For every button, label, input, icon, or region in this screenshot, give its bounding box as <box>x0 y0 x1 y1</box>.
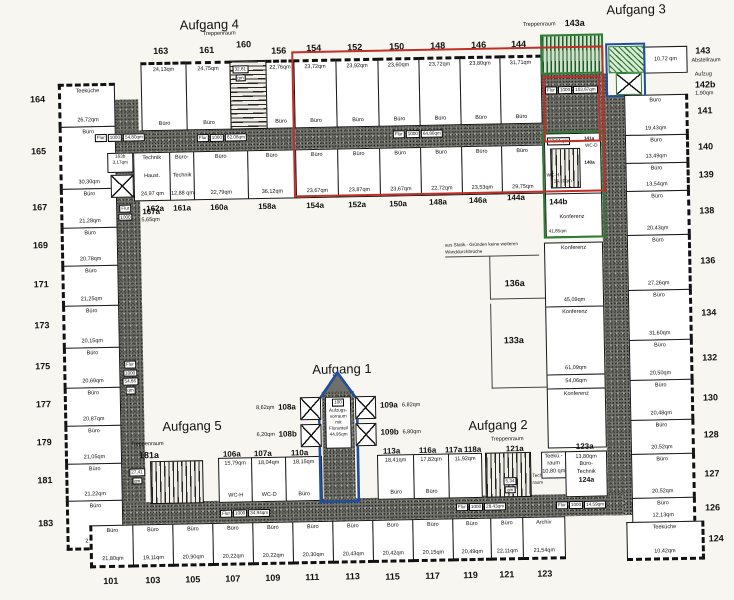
room-number-146: 146 <box>471 40 486 50</box>
room-number-132: 132 <box>702 352 717 362</box>
room-116a: 17,82qmBüro <box>413 453 450 499</box>
room-124: Teeküche10,42qm <box>626 521 705 561</box>
room-type-wcd: WC-D <box>585 143 598 149</box>
room-type-143: Abstellraum <box>691 57 720 64</box>
bracket-136a <box>489 256 491 300</box>
room-132: Büro20,50qm <box>629 339 694 381</box>
room-area-142b: 1,90qm <box>695 90 713 96</box>
room-area-144b: 41,85qm <box>549 228 567 234</box>
room-106a: 15,79qmWC-H <box>218 457 253 503</box>
room-111: Büro20,30qm <box>292 521 334 565</box>
bracket-136a-tick <box>490 298 545 300</box>
room-number-156: 156 <box>271 46 286 56</box>
room-148a: Büro22,72qm <box>420 146 463 196</box>
room-number-141: 141 <box>697 105 712 115</box>
room-number-134: 134 <box>701 307 716 317</box>
corridor-label-top-right: Flur100064,80qm <box>393 130 443 139</box>
room-154: 23,72qmBüro <box>293 59 337 129</box>
room-136a: Konferenz45,09qm <box>544 241 604 307</box>
room-number-123: 123 <box>537 568 552 578</box>
room-number-117a: 117a <box>445 445 463 454</box>
room-number-101: 101 <box>103 576 118 586</box>
stairwell-181a-area: 27,41 qm <box>129 468 145 485</box>
elevator-icon <box>355 396 376 419</box>
room-number-136a: 136a <box>505 278 525 288</box>
room-113a: 18,41qmBüro <box>377 454 415 500</box>
room-number-169: 169 <box>33 240 48 250</box>
room-number-109: 109 <box>265 573 280 583</box>
room-173: Büro20,15qm <box>62 305 120 349</box>
statik-note-underline <box>445 255 539 258</box>
room-number-175: 175 <box>35 361 50 371</box>
corridor-label-167a: Flur 1000 <box>118 204 133 221</box>
room-number-123a: 123a <box>576 442 594 451</box>
elevator-icon <box>616 73 642 95</box>
room-number-126: 126 <box>705 502 720 512</box>
room-115: Büro20,42qm <box>372 519 414 563</box>
room-134: Büro31,60qm <box>628 289 693 341</box>
room-number-160a: 160a <box>210 203 228 212</box>
room-181: Büro21,22qm <box>65 463 123 502</box>
room-163: 24,13qmBüro <box>140 61 187 131</box>
corridor-label-bottom-left: Flur100034,94qm <box>220 509 270 518</box>
treppenraum-160-label: Treppenraum <box>203 30 236 37</box>
room-141: Büro19,43qm <box>624 94 689 136</box>
room-103: Büro19,11qm <box>132 524 174 568</box>
room-buero-technik: Büro-Technik12,88 qm <box>169 151 195 200</box>
bracket-133a-tick <box>492 387 547 389</box>
room-number-161a: 161a <box>173 203 191 212</box>
room-number-108a: 108a <box>278 402 296 411</box>
room-number-181a: 181a <box>139 450 159 460</box>
stairwell-160-area: 32,81 qm <box>232 65 248 82</box>
building-plan: Aufgang 4 Aufgang 3 Aufgang 1 Aufgang 5 … <box>0 0 734 600</box>
room-number-141a: 141a <box>584 136 594 142</box>
heading-aufgang5: Aufgang 5 <box>162 418 222 434</box>
room-teekueche-122a: Teekü.-raum10,80 qm <box>541 451 567 478</box>
stairwell-143a-aufgang3 <box>540 33 604 74</box>
room-number-105: 105 <box>185 574 200 584</box>
treppenraum-143a-label: Treppenraum <box>523 21 556 28</box>
elevator-vestibule-aufgang3 <box>608 46 645 74</box>
room-area-wch: 14,10qm <box>554 178 572 184</box>
elevator-icon <box>300 424 321 447</box>
room-number-181: 181 <box>37 475 52 485</box>
room-techn-raum-2: raum <box>532 480 543 486</box>
elevator-icon <box>111 174 134 197</box>
room-136: Büro27,26qm <box>627 234 692 291</box>
elevator-icon <box>355 423 376 446</box>
room-number-150: 150 <box>389 41 404 51</box>
room-143: 10,72 qm <box>643 46 688 74</box>
room-type-144b: Konferenz <box>559 214 584 220</box>
room-number-171: 171 <box>34 279 49 289</box>
room-152a: Büro23,87qm <box>337 148 381 198</box>
wc-area-chip: 13,64 qm <box>547 137 570 145</box>
room-138: Büro20,43qm <box>626 190 691 236</box>
room-number-142b: 142b <box>695 79 716 89</box>
stairwell-181a-aufgang5 <box>150 460 204 504</box>
room-150a: Büro23,67qm <box>379 147 422 197</box>
room-number-127: 127 <box>704 468 719 478</box>
room-number-113: 113 <box>345 571 360 581</box>
room-number-108b: 108b <box>278 429 296 438</box>
room-146a: Büro23,53qm <box>461 145 503 195</box>
room-number-148a: 148a <box>429 197 447 206</box>
room-number-165: 165 <box>31 146 46 156</box>
room-number-124: 124 <box>709 533 724 543</box>
room-number-144b: 144b <box>549 197 567 206</box>
room-150: 23,60qmBüro <box>377 57 420 127</box>
heading-aufgang3: Aufgang 3 <box>606 1 666 17</box>
room-number-154a: 154a <box>306 201 324 210</box>
room-number-115: 115 <box>385 571 400 581</box>
room-number-140a: 140a <box>584 160 594 166</box>
room-117a-118a: 11,92qm <box>448 453 483 499</box>
room-123a-buero-technik: 13,80qmBüro-Technik124a <box>565 450 608 497</box>
room-117: Büro20,15qm <box>412 518 454 562</box>
room-number-117: 117 <box>425 571 440 581</box>
room-126: Büro12,13qm <box>632 497 696 523</box>
room-number-119: 119 <box>463 570 478 580</box>
room-number-154: 154 <box>306 43 321 53</box>
room-133a: Konferenz61,09qm <box>545 305 605 375</box>
room-number-138: 138 <box>699 205 714 215</box>
room-156: 22,76qmBüro <box>265 59 295 129</box>
room-area-109b: 6,80qm <box>402 429 420 435</box>
room-146: 23,80qmBüro <box>459 55 501 125</box>
room-121: Büro22,11qm <box>490 517 524 561</box>
room-139: Büro13,54qm <box>625 162 690 192</box>
heading-aufgang2: Aufgang 2 <box>468 417 528 433</box>
corridor-label-top-mid: Flur100062,06qm <box>197 133 247 142</box>
room-105: Büro20,90qm <box>172 523 214 567</box>
room-123: Archiv21,54qm <box>522 516 566 560</box>
aufzug-label: Aufzug <box>695 71 712 77</box>
room-101: Büro21,80qm <box>89 525 134 569</box>
room-number-161: 161 <box>199 45 214 55</box>
room-number-152a: 152a <box>348 200 366 209</box>
room-109: Büro20,22qm <box>252 521 294 565</box>
room-179: Büro21,05qm <box>64 425 122 465</box>
room-number-179: 179 <box>37 437 52 447</box>
room-number-150a: 150a <box>389 199 407 208</box>
room-number-163: 163 <box>153 46 168 56</box>
room-number-146a: 146a <box>469 196 487 205</box>
corridor-label-bottom-mid: Flur100028,43qm <box>456 502 506 511</box>
room-number-110a: 110a <box>291 448 309 457</box>
room-number-164: 164 <box>30 94 45 104</box>
room-number-167: 167 <box>32 202 47 212</box>
elevator-icon <box>300 397 321 420</box>
room-152: 23,92qmBüro <box>335 58 379 128</box>
room-number-121: 121 <box>499 569 514 579</box>
bracket-133a <box>490 304 493 389</box>
statik-note-line2: Wanddurchbrüche <box>445 249 482 255</box>
room-number-128: 128 <box>704 429 719 439</box>
room-number-106a: 106a <box>223 449 241 458</box>
room-130: Büro20,48qm <box>630 379 695 421</box>
room-128: Büro20,52qm <box>630 419 695 455</box>
room-number-143: 143 <box>695 45 710 55</box>
room-number-107a: 107a <box>254 449 272 458</box>
room-number-109b: 109b <box>380 427 398 436</box>
corridor-label-left: Flur 1000 54,66 qm <box>122 360 138 394</box>
corridor-label-bottom-right: Flur100014,59qm <box>556 500 606 509</box>
room-number-160: 160 <box>236 39 251 49</box>
room-number-144: 144 <box>511 39 526 49</box>
room-number-183: 183 <box>38 518 53 528</box>
room-number-143a: 143a <box>565 18 585 28</box>
room-163b: 163b 3,17qm <box>107 152 133 172</box>
room-number-173: 173 <box>34 320 49 330</box>
room-144: 31,71qmBüro <box>499 55 542 125</box>
room-area-108b: 6,20qm <box>257 432 275 438</box>
room-number-109a: 109a <box>380 400 398 409</box>
room-number-136: 136 <box>700 255 715 265</box>
room-number-152: 152 <box>347 42 362 52</box>
corridor-label-corner: Flur1000103,87qm <box>545 86 598 95</box>
room-area-108a: 8,62qm <box>256 405 274 411</box>
room-area-109a: 6,82qm <box>402 402 420 408</box>
room-area-167a: 5,65qm <box>141 217 159 223</box>
room-154a: Büro23,67qm <box>295 149 339 199</box>
room-technik-haust: TechnikHaust.24,97 qm <box>133 152 171 202</box>
room-175: Büro20,69qm <box>63 347 121 389</box>
room-number-139: 139 <box>699 169 714 179</box>
room-number-113a: 113a <box>383 446 401 455</box>
room-number-158a: 158a <box>258 202 276 211</box>
room-169: Büro20,78qm <box>61 227 119 267</box>
floor-plan-scan: Aufgang 4 Aufgang 3 Aufgang 1 Aufgang 5 … <box>0 0 734 600</box>
room-number-148: 148 <box>430 40 445 50</box>
room-140: Büro13,49qm <box>625 134 690 164</box>
room-number-130: 130 <box>703 392 718 402</box>
room-148: 23,72qmBüro <box>418 56 461 126</box>
room-144a: Büro29,75qm <box>501 145 544 195</box>
room-158a: Büro36,12qm <box>247 149 297 199</box>
room-number-111: 111 <box>305 572 319 582</box>
room-171: Büro21,25qm <box>61 265 119 307</box>
room-konferenz-south: Konferenz <box>547 387 607 448</box>
room-area-5-34: 5,34 qm <box>503 477 516 494</box>
room-164: Teeküche26,72qm <box>58 83 116 128</box>
room-177: Büro20,87qm <box>64 387 122 427</box>
room-160a: Büro22,79qm <box>193 150 249 200</box>
corridor-label-top-left: Flur100054,80qm <box>95 133 145 142</box>
room-number-140: 140 <box>698 141 713 151</box>
room-107: Büro20,22qm <box>212 522 254 566</box>
room-167: Büro21,28qm <box>60 188 118 229</box>
room-number-116a: 116a <box>419 446 437 455</box>
room-161: 24,75qmBüro <box>185 61 231 131</box>
room-number-121a: 121a <box>506 444 524 453</box>
treppenraum-121a-label: Treppenraum <box>491 436 524 443</box>
room-number-118a: 118a <box>464 445 482 454</box>
room-number-103: 103 <box>145 575 160 585</box>
room-107a: 18,04qmWC-D <box>251 457 287 503</box>
room-number-107: 107 <box>225 573 240 583</box>
room-number-133a: 133a <box>504 335 524 345</box>
room-number-162a: 162a <box>146 204 164 213</box>
room-119: Büro20,49qm <box>452 518 492 562</box>
room-number-177: 177 <box>36 399 51 409</box>
treppenraum-181a-label: Treppenraum <box>131 441 164 448</box>
room-127: Büro20,52qm <box>631 453 696 499</box>
statik-note-line1: aus Statik.- Gründen keine weiteren <box>445 241 518 248</box>
room-number-144a: 144a <box>507 193 525 202</box>
room-113: Büro20,43qm <box>332 520 374 564</box>
